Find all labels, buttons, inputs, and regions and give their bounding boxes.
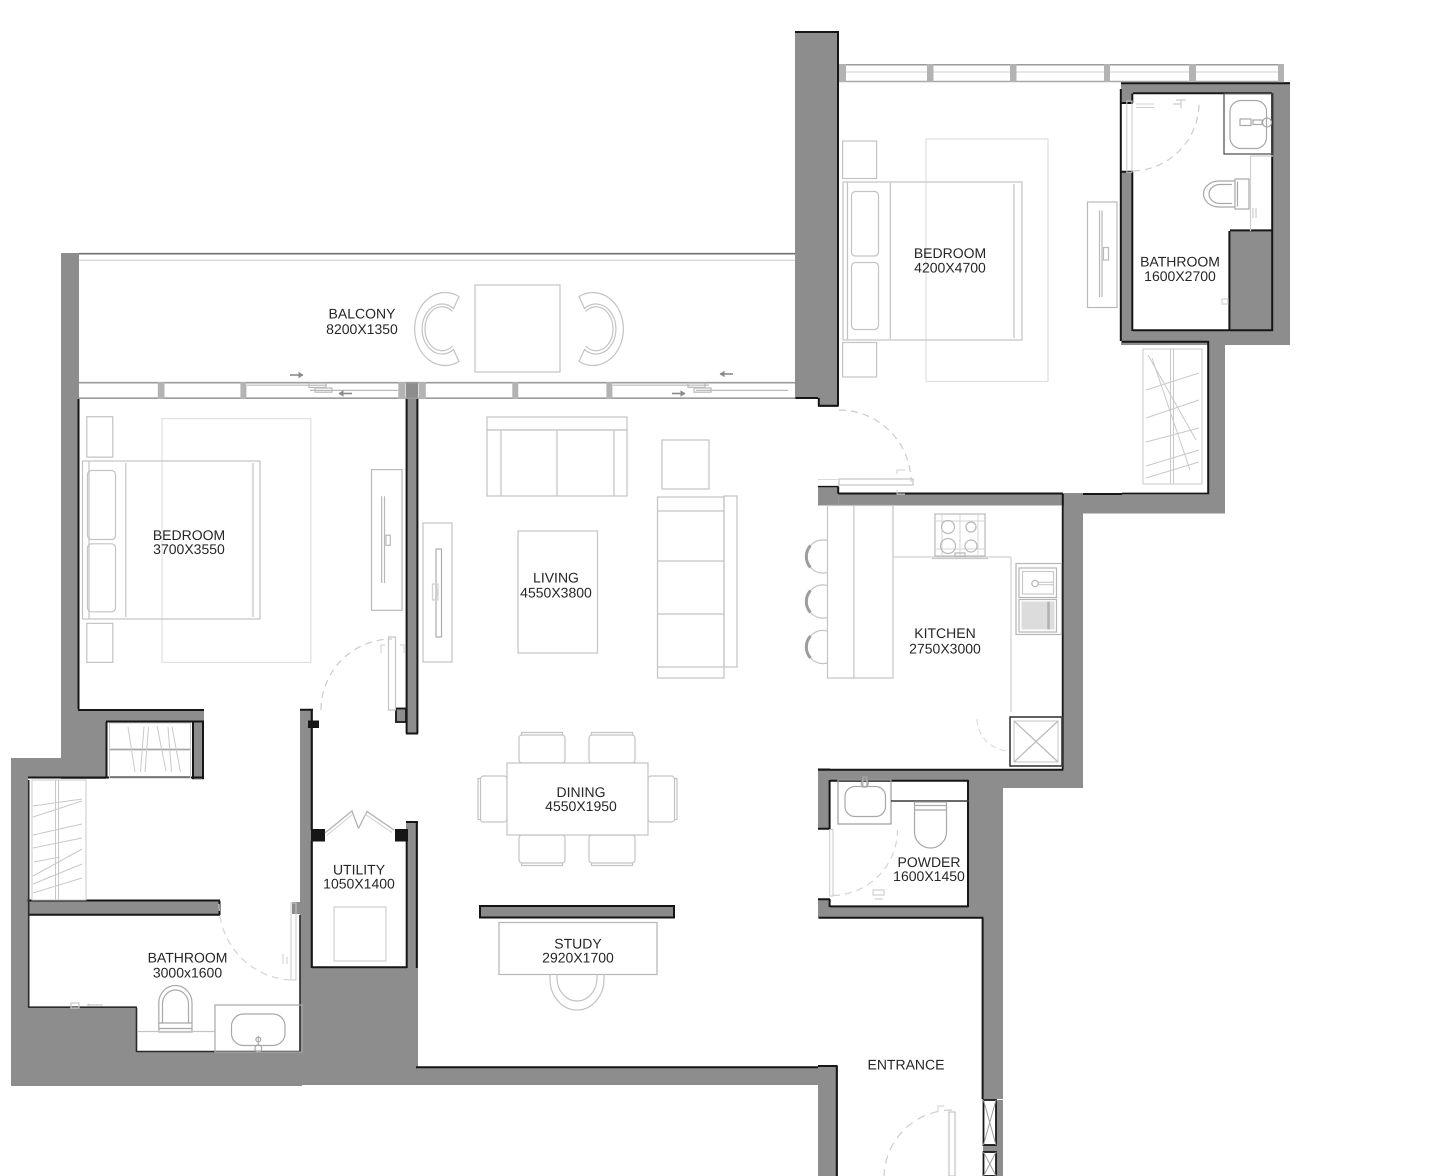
svg-text:1600X2700: 1600X2700	[1144, 268, 1216, 284]
svg-text:LIVING: LIVING	[533, 570, 579, 586]
svg-text:3000x1600: 3000x1600	[153, 965, 223, 981]
svg-text:1600X1450: 1600X1450	[893, 868, 965, 884]
svg-text:4550X1950: 4550X1950	[545, 798, 617, 814]
svg-text:KITCHEN: KITCHEN	[914, 625, 975, 641]
svg-text:4200X4700: 4200X4700	[914, 260, 986, 276]
svg-text:BATHROOM: BATHROOM	[148, 950, 228, 966]
svg-text:2750X3000: 2750X3000	[909, 641, 981, 657]
svg-text:1050X1400: 1050X1400	[323, 876, 395, 892]
svg-text:4550X3800: 4550X3800	[520, 585, 592, 601]
svg-text:3700X3550: 3700X3550	[153, 541, 225, 557]
svg-text:BALCONY: BALCONY	[329, 306, 397, 322]
svg-text:8200X1350: 8200X1350	[326, 321, 398, 337]
svg-text:ENTRANCE: ENTRANCE	[867, 1057, 944, 1073]
svg-text:2920X1700: 2920X1700	[542, 950, 614, 966]
